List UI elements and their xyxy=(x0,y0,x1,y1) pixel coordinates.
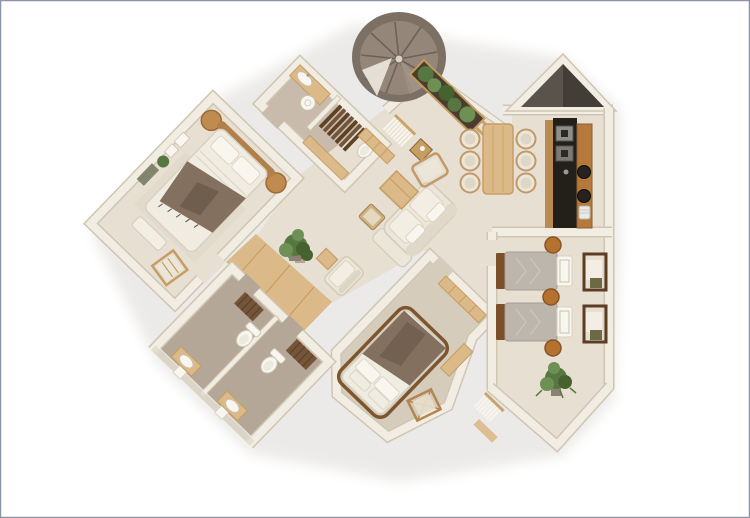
plant-pot xyxy=(551,388,561,396)
cooktop-center xyxy=(561,150,568,157)
cooktop-center xyxy=(561,130,568,137)
round-stool xyxy=(545,237,561,253)
kitchen xyxy=(545,118,592,228)
round-sink xyxy=(578,166,591,179)
round-stool xyxy=(543,289,559,305)
bed-foot-board xyxy=(496,304,505,340)
dining-area xyxy=(461,124,536,194)
round-sink xyxy=(578,190,591,203)
floor-plan-image xyxy=(0,0,750,518)
kitchen-faucet xyxy=(564,170,569,175)
canister xyxy=(579,206,590,219)
single-bed-2 xyxy=(496,303,572,341)
stair-center-pole xyxy=(395,55,403,63)
floor-plan-render xyxy=(0,0,750,518)
dining-table xyxy=(483,124,513,194)
single-bed-1 xyxy=(496,252,572,290)
kitchen-cabinet-face xyxy=(545,120,553,228)
bed-mattress xyxy=(505,252,557,290)
round-stool xyxy=(545,340,561,356)
bed-mattress xyxy=(505,303,557,341)
bed-foot-board xyxy=(496,253,505,289)
